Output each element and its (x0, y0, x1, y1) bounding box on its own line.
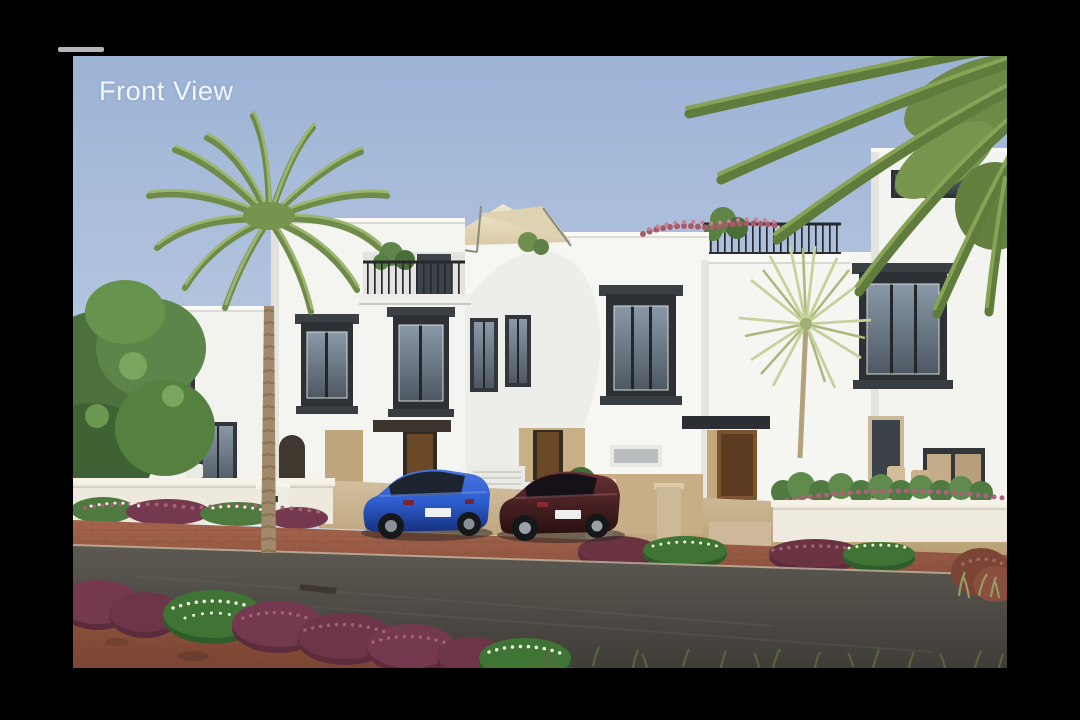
license-plate (425, 508, 451, 517)
right-edge-shrub (951, 548, 1007, 602)
front-view-label: Front View (99, 76, 234, 107)
bay-window-center (599, 285, 683, 405)
bay-window-midleft-b (387, 307, 455, 417)
rendering-scene (73, 56, 1007, 668)
frame-artifact-streak (58, 47, 104, 52)
bay-window-midleft-a (295, 314, 359, 414)
rendering-photo: Front View (73, 56, 1007, 668)
video-frame: Front View (0, 0, 1080, 720)
license-plate (555, 510, 581, 519)
balcony-railing (363, 262, 465, 296)
window-center-low (610, 445, 662, 467)
right-planter (771, 472, 1007, 542)
